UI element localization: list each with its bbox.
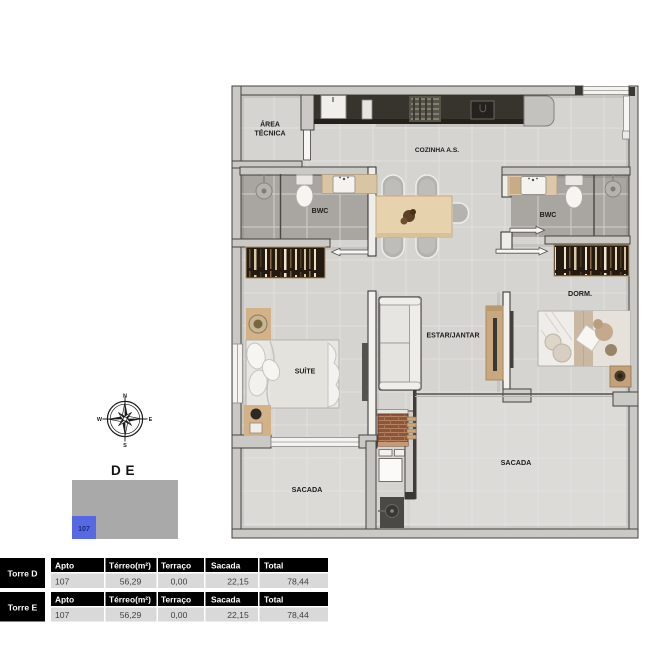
svg-text:BWC: BWC [540,212,557,219]
svg-text:E: E [149,417,153,423]
svg-text:78,44: 78,44 [287,610,309,620]
svg-text:107: 107 [78,526,90,533]
svg-text:Total: Total [264,561,283,571]
svg-text:ESTAR/JANTAR: ESTAR/JANTAR [426,333,479,340]
svg-text:Sacada: Sacada [211,561,241,571]
svg-text:DORM.: DORM. [568,289,592,298]
svg-text:D E: D E [111,463,135,478]
svg-text:N: N [123,394,127,400]
svg-text:BWC: BWC [312,208,329,215]
svg-text:56,29: 56,29 [120,610,142,620]
svg-text:Apto: Apto [55,595,74,605]
svg-text:22,15: 22,15 [227,610,249,620]
svg-text:SACADA: SACADA [292,485,323,494]
svg-text:S: S [123,443,127,449]
svg-text:Torre D: Torre D [8,569,38,579]
svg-text:Torre E: Torre E [8,603,38,613]
svg-text:COZINHA A.S.: COZINHA A.S. [415,147,459,154]
svg-text:Sacada: Sacada [211,595,241,605]
svg-text:ÁREA: ÁREA [260,120,280,129]
svg-text:0,00: 0,00 [171,610,188,620]
svg-text:SUÍTE: SUÍTE [295,367,316,376]
svg-text:Térreo(m²): Térreo(m²) [109,595,151,605]
svg-text:Total: Total [264,595,283,605]
svg-text:22,15: 22,15 [227,577,249,587]
svg-text:107: 107 [55,577,70,587]
svg-text:56,29: 56,29 [120,577,142,587]
svg-text:Térreo(m²): Térreo(m²) [109,561,151,571]
svg-text:W: W [97,417,103,423]
svg-text:0,00: 0,00 [171,577,188,587]
svg-text:Terraço: Terraço [161,595,191,605]
svg-text:Apto: Apto [55,561,74,571]
svg-text:107: 107 [55,610,70,620]
svg-text:SACADA: SACADA [501,458,532,467]
svg-text:TÉCNICA: TÉCNICA [254,129,285,138]
svg-text:Terraço: Terraço [161,561,191,571]
svg-text:78,44: 78,44 [287,577,309,587]
